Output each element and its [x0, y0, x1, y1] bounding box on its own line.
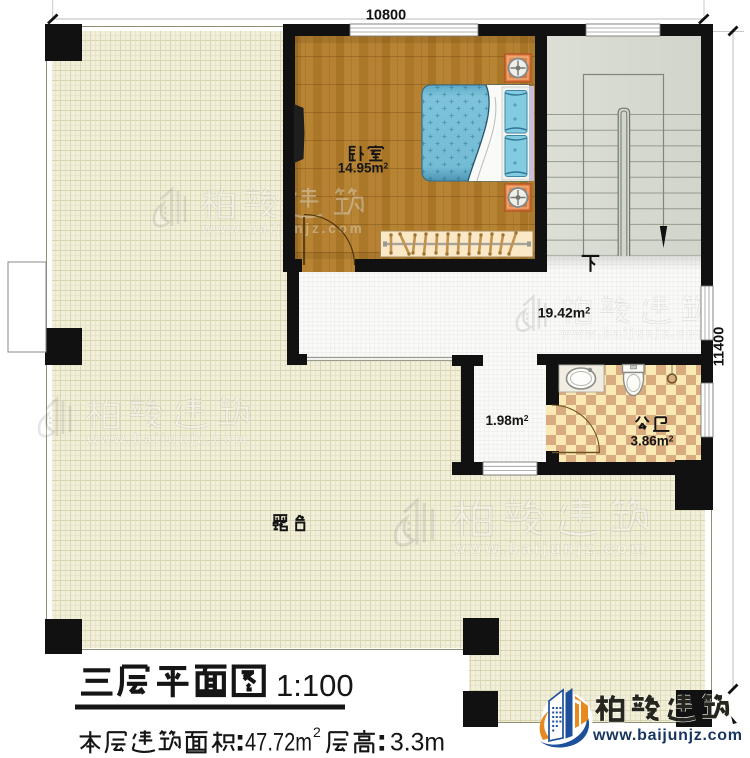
- svg-text:3.3m: 3.3m: [390, 729, 445, 757]
- svg-text:19.42m2: 19.42m2: [538, 305, 591, 321]
- svg-text:www.baijunjz.com: www.baijunjz.com: [592, 727, 742, 744]
- svg-text:11400: 11400: [712, 327, 728, 367]
- svg-text:3.86m2: 3.86m2: [630, 434, 673, 449]
- svg-text:47.72m: 47.72m: [245, 729, 312, 757]
- svg-text:10800: 10800: [366, 8, 406, 24]
- svg-text:14.95m2: 14.95m2: [338, 161, 389, 176]
- svg-text:1.98m2: 1.98m2: [485, 413, 528, 428]
- svg-text:2: 2: [313, 724, 321, 740]
- svg-text:1:100: 1:100: [276, 668, 354, 703]
